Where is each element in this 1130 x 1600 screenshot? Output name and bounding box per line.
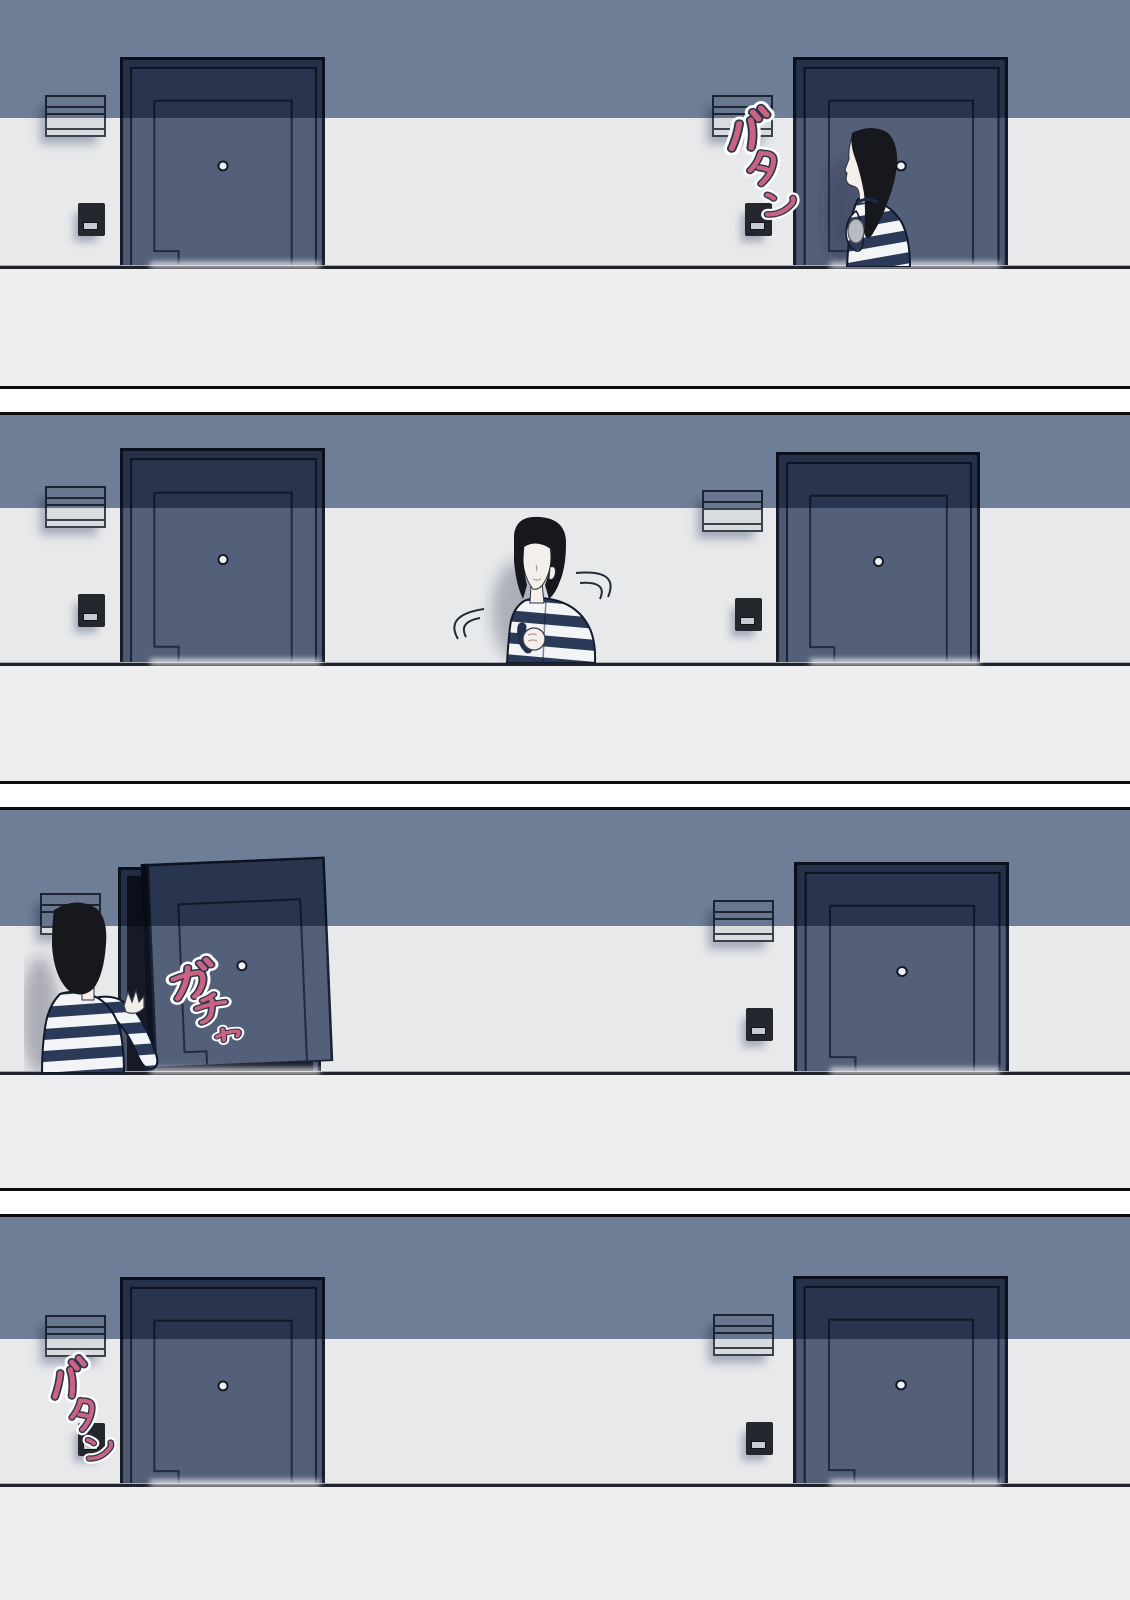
panel-4: バタン [0, 1217, 1130, 1600]
motion-arc-left [454, 609, 484, 639]
peephole [874, 557, 883, 566]
intercom-unit [78, 594, 105, 627]
sfx-glyph-ta [748, 151, 777, 185]
hair-bob [52, 902, 106, 994]
corridor-parapet [0, 1487, 1130, 1600]
peephole [218, 162, 227, 171]
woman-looking-around [430, 515, 630, 663]
intercom-slot [83, 613, 98, 621]
corridor-parapet [0, 666, 1130, 781]
intercom-slot [740, 617, 755, 625]
sfx-glyph-n [765, 191, 795, 215]
peephole [218, 1382, 227, 1391]
sfx-glyph-ta [69, 1399, 95, 1432]
intercom-slot [83, 222, 98, 230]
peephole [218, 555, 227, 564]
sfx-glyph-chi [195, 993, 228, 1023]
sfx-door-slam: バタン [31, 1348, 133, 1473]
intercom-unit [78, 203, 105, 236]
hand [848, 219, 864, 243]
shadow-band [0, 415, 1130, 508]
sfx-glyph-small-ya [216, 1027, 240, 1042]
sfx-glyph-ba [727, 107, 771, 150]
sfx-door-click: ガチャ [160, 952, 257, 1061]
panel-3: ガチャ [0, 810, 1130, 1188]
panel-2 [0, 415, 1130, 781]
comic-page: バタン [0, 0, 1130, 1600]
shadow-band [0, 1217, 1130, 1339]
peephole [897, 967, 907, 976]
intercom-slot [751, 1027, 766, 1035]
panel-1: バタン [0, 0, 1130, 386]
corridor-parapet [0, 269, 1130, 386]
shadow-band [0, 810, 1130, 926]
motion-arc-right [576, 573, 611, 600]
woman-back-opening-door [24, 898, 164, 1073]
sfx-glyph-ba [49, 1357, 89, 1398]
sfx-door-slam: バタン [706, 98, 817, 228]
panel-border [0, 386, 1130, 389]
intercom-slot [751, 1441, 766, 1449]
hand-fist [523, 628, 545, 650]
panel-border [0, 412, 1130, 415]
intercom-unit [735, 598, 762, 631]
panel-border [0, 807, 1130, 810]
panel-border [0, 781, 1130, 784]
intercom-unit [746, 1422, 773, 1455]
intercom-unit [746, 1008, 773, 1041]
shadow-band [0, 0, 1130, 118]
sfx-glyph-n [86, 1436, 113, 1459]
hand-on-door [124, 990, 144, 1013]
corridor-parapet [0, 1075, 1130, 1188]
panel-border [0, 1214, 1130, 1217]
panel-border [0, 1188, 1130, 1191]
peephole [896, 1381, 906, 1390]
woman-profile [800, 115, 915, 267]
